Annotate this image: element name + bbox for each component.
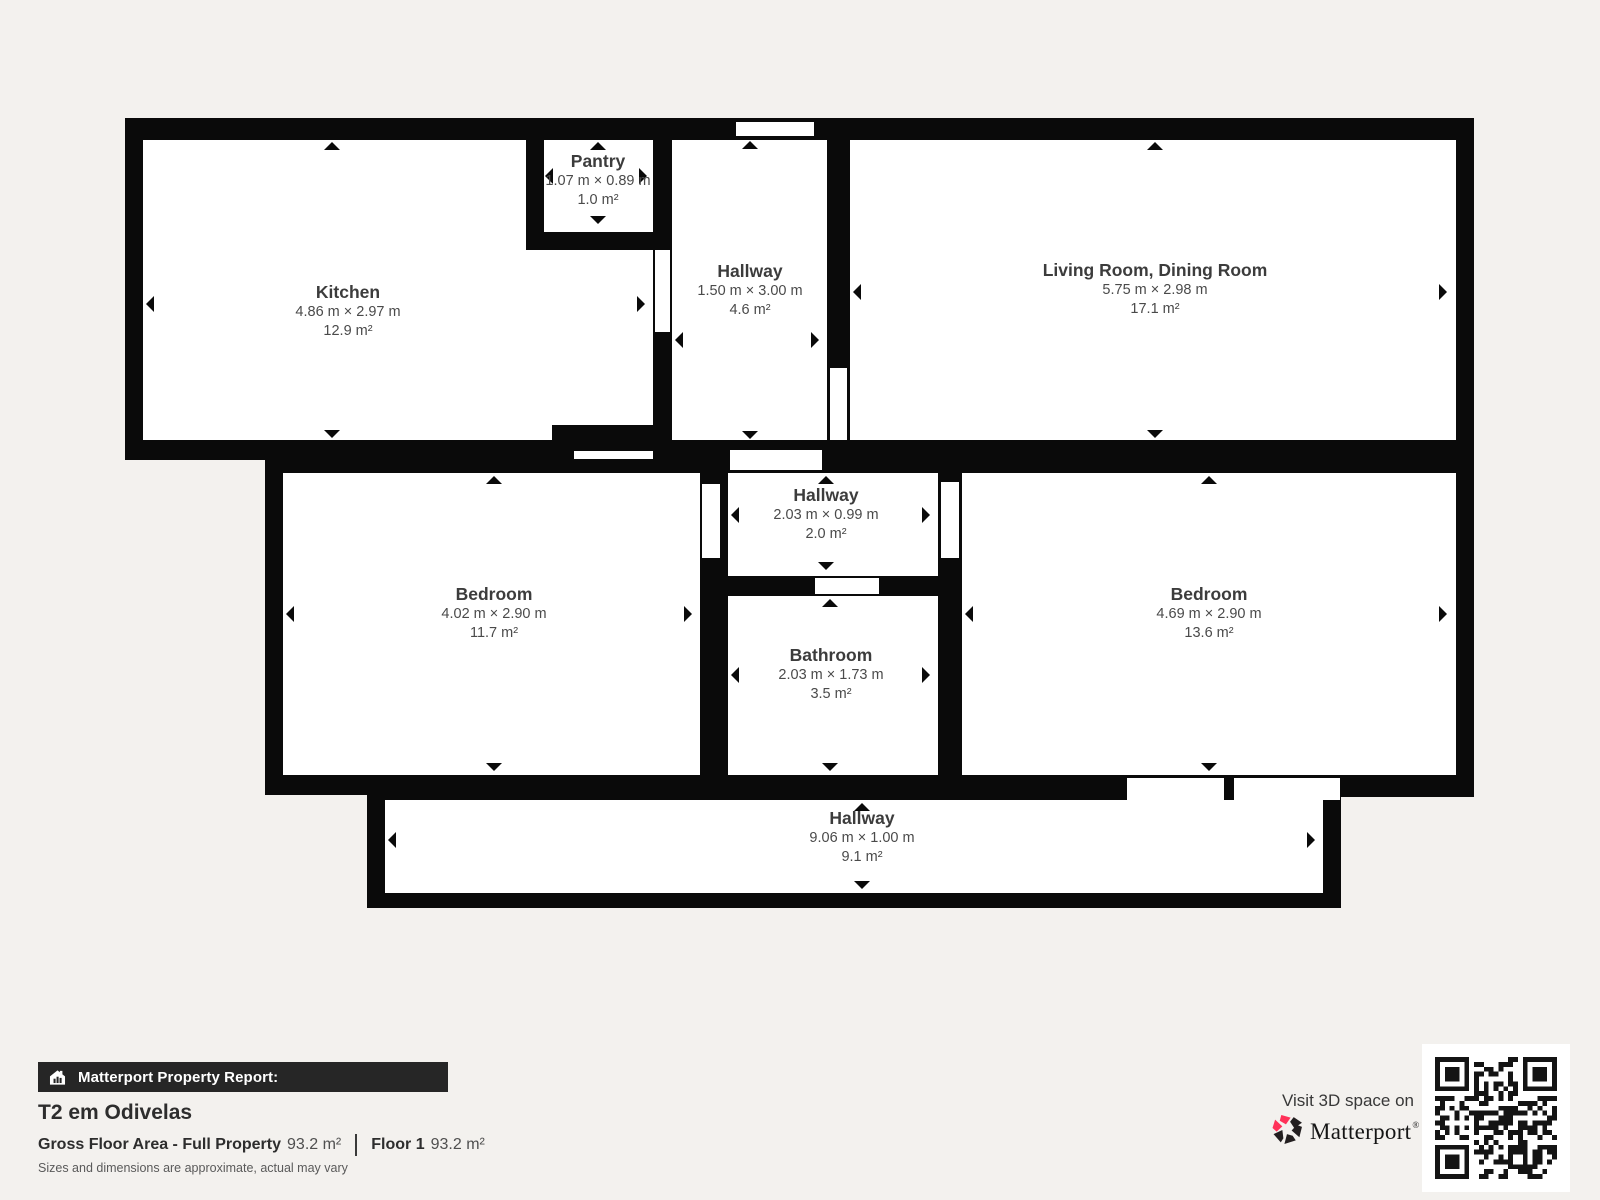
room-dimensions: 2.03 m × 1.73 m (778, 666, 883, 685)
room-name: Pantry (545, 151, 650, 172)
dimension-arrow-left (675, 332, 683, 348)
dimension-arrow-right (1307, 832, 1315, 848)
gross-floor-area-label: Gross Floor Area - Full Property (38, 1136, 281, 1154)
qr-code (1422, 1044, 1570, 1192)
room-dimensions: 1.50 m × 3.00 m (697, 282, 802, 301)
room-area: 3.5 m² (778, 685, 883, 704)
room-name: Hallway (809, 808, 914, 829)
room-dimensions: 9.06 m × 1.00 m (809, 829, 914, 848)
room-label-living-room: Living Room, Dining Room 5.75 m × 2.98 m… (1043, 260, 1268, 319)
dimension-arrow-down (590, 216, 606, 224)
dimension-arrow-left (731, 507, 739, 523)
dimension-arrow-left (853, 284, 861, 300)
room-dimensions: 4.69 m × 2.90 m (1156, 605, 1261, 624)
room-dimensions: 1.07 m × 0.89 m (545, 172, 650, 191)
door-opening (655, 250, 670, 332)
dimension-arrow-down (486, 763, 502, 771)
door-opening (941, 482, 959, 558)
dimension-arrow-right (1439, 284, 1447, 300)
matterport-pinwheel-icon (1272, 1114, 1303, 1150)
wall-segment (367, 893, 1341, 908)
wall-segment (265, 440, 283, 795)
wall-segment (1323, 785, 1341, 908)
room-name: Bedroom (441, 584, 546, 605)
house-chart-icon (48, 1068, 67, 1087)
dimension-arrow-down (1201, 763, 1217, 771)
gross-floor-area-value: 93.2 m² (287, 1136, 341, 1154)
wall-segment (526, 118, 544, 250)
room-area: 12.9 m² (295, 322, 400, 341)
room-dimensions: 2.03 m × 0.99 m (773, 506, 878, 525)
room-area: 9.1 m² (809, 848, 914, 867)
dimension-arrow-up (486, 476, 502, 484)
door-opening (815, 578, 879, 594)
dimension-arrow-up (742, 141, 758, 149)
dimension-arrow-left (731, 667, 739, 683)
dimension-arrow-down (324, 430, 340, 438)
dimension-arrow-right (1439, 606, 1447, 622)
room-name: Hallway (697, 261, 802, 282)
door-opening (1127, 778, 1224, 801)
room-label-kitchen: Kitchen 4.86 m × 2.97 m 12.9 m² (295, 282, 400, 341)
matterport-brand: Matterport ® (1272, 1114, 1419, 1150)
room-area: 4.6 m² (697, 301, 802, 320)
dimension-arrow-right (922, 667, 930, 683)
report-bar-label: Matterport Property Report: (78, 1069, 278, 1086)
room-name: Bathroom (778, 645, 883, 666)
room-label-bedroom-left: Bedroom 4.02 m × 2.90 m 11.7 m² (441, 584, 546, 643)
floor-label: Floor 1 (371, 1136, 424, 1154)
dimension-arrow-up (818, 476, 834, 484)
dimension-arrow-down (818, 562, 834, 570)
dimension-arrow-down (854, 881, 870, 889)
floor-area-value: 93.2 m² (431, 1136, 485, 1154)
dimension-arrow-up (1201, 476, 1217, 484)
dimension-arrow-up (590, 142, 606, 150)
room-name: Bedroom (1156, 584, 1261, 605)
room-name: Hallway (773, 485, 878, 506)
dimension-arrow-up (1147, 142, 1163, 150)
dimension-arrow-down (1147, 430, 1163, 438)
wall-segment (125, 118, 143, 460)
wall-segment (265, 440, 1474, 473)
door-opening (736, 122, 814, 136)
room-area: 1.0 m² (545, 191, 650, 210)
floor-plan: Kitchen 4.86 m × 2.97 m 12.9 m² Pantry 1… (0, 0, 1600, 960)
divider (355, 1134, 357, 1156)
dimension-arrow-up (822, 599, 838, 607)
room-label-hallway-mid: Hallway 2.03 m × 0.99 m 2.0 m² (773, 485, 878, 544)
door-opening (730, 450, 822, 470)
room-name: Kitchen (295, 282, 400, 303)
wall-segment (1341, 775, 1474, 797)
door-opening (1234, 778, 1340, 800)
dimension-arrow-down (822, 763, 838, 771)
room-area: 13.6 m² (1156, 624, 1261, 643)
dimension-arrow-left (965, 606, 973, 622)
room-area: 17.1 m² (1043, 300, 1268, 319)
registered-mark: ® (1412, 1120, 1419, 1130)
dimension-arrow-left (286, 606, 294, 622)
visit-3d-label: Visit 3D space on (1248, 1091, 1448, 1111)
floor-area-summary: Gross Floor Area - Full Property 93.2 m²… (38, 1134, 485, 1156)
room-dimensions: 4.02 m × 2.90 m (441, 605, 546, 624)
room-label-pantry: Pantry 1.07 m × 0.89 m 1.0 m² (545, 151, 650, 210)
dimension-arrow-right (922, 507, 930, 523)
room-dimensions: 5.75 m × 2.98 m (1043, 281, 1268, 300)
room-label-hallway-bottom: Hallway 9.06 m × 1.00 m 9.1 m² (809, 808, 914, 867)
room-label-bathroom: Bathroom 2.03 m × 1.73 m 3.5 m² (778, 645, 883, 704)
wall-segment (526, 232, 672, 250)
dimension-arrow-up (324, 142, 340, 150)
wall-segment (265, 775, 367, 795)
wall-segment (125, 440, 283, 460)
dimension-arrow-right (684, 606, 692, 622)
report-header-bar: Matterport Property Report: (38, 1062, 448, 1092)
door-opening (702, 484, 720, 558)
dimension-arrow-left (388, 832, 396, 848)
dimension-arrow-left (146, 296, 154, 312)
wall-segment (367, 775, 385, 908)
room-label-bedroom-right: Bedroom 4.69 m × 2.90 m 13.6 m² (1156, 584, 1261, 643)
matterport-wordmark: Matterport (1310, 1119, 1411, 1145)
room-name: Living Room, Dining Room (1043, 260, 1268, 281)
dimension-arrow-right (637, 296, 645, 312)
door-opening (830, 368, 847, 440)
door-opening (574, 451, 653, 459)
room-area: 11.7 m² (441, 624, 546, 643)
dimension-arrow-right (811, 332, 819, 348)
wall-fixture (552, 425, 653, 442)
room-area: 2.0 m² (773, 525, 878, 544)
room-dimensions: 4.86 m × 2.97 m (295, 303, 400, 322)
room-label-hallway-top: Hallway 1.50 m × 3.00 m 4.6 m² (697, 261, 802, 320)
dimension-arrow-down (742, 431, 758, 439)
property-title: T2 em Odivelas (38, 1101, 192, 1125)
property-report-page: Kitchen 4.86 m × 2.97 m 12.9 m² Pantry 1… (0, 0, 1600, 1200)
disclaimer-text: Sizes and dimensions are approximate, ac… (38, 1161, 348, 1175)
